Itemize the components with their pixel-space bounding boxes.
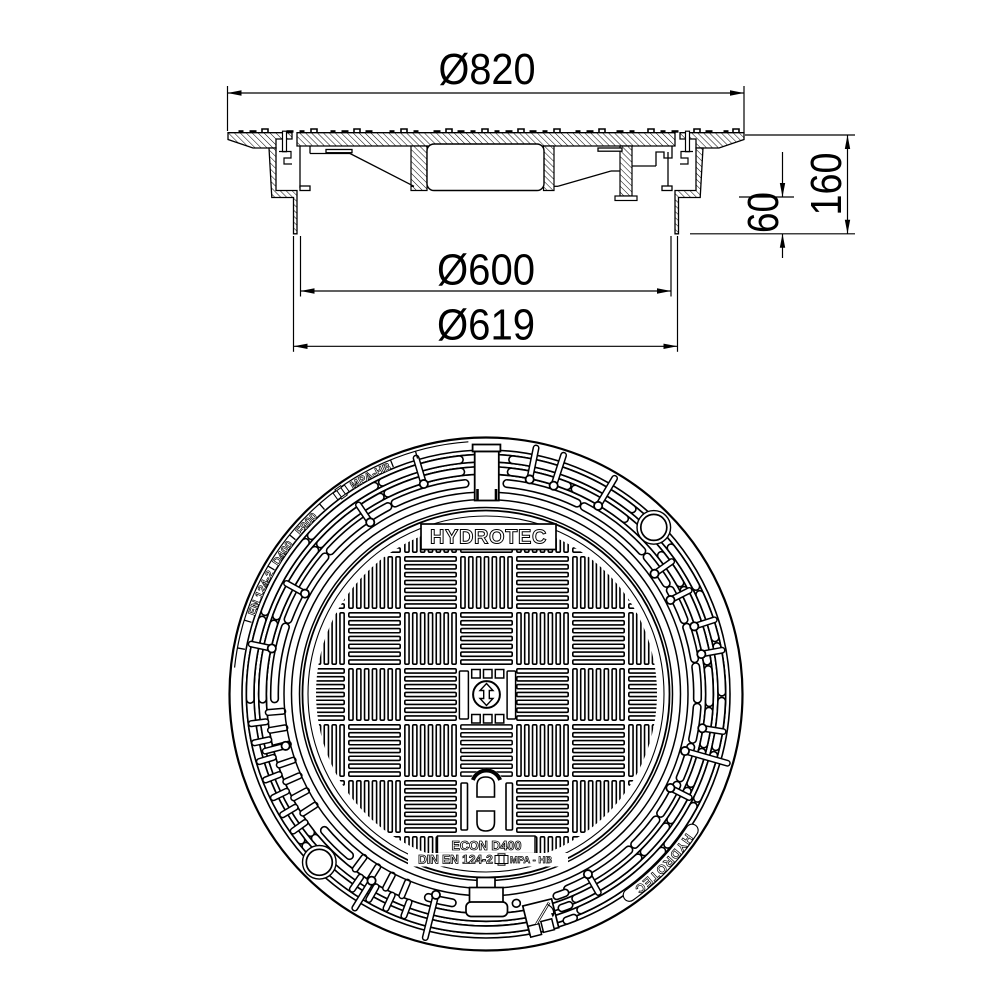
svg-text:ECON D400: ECON D400	[452, 839, 522, 853]
svg-text:160: 160	[802, 153, 851, 216]
svg-text:HYDROTEC: HYDROTEC	[430, 527, 547, 549]
svg-text:DIN EN 124-2: DIN EN 124-2	[418, 853, 493, 867]
svg-text:MPA - HB: MPA - HB	[510, 855, 552, 866]
svg-text:Ø600: Ø600	[437, 246, 535, 295]
svg-text:Ø619: Ø619	[437, 301, 535, 350]
svg-text:Ø820: Ø820	[439, 45, 536, 94]
svg-text:60: 60	[739, 192, 788, 233]
